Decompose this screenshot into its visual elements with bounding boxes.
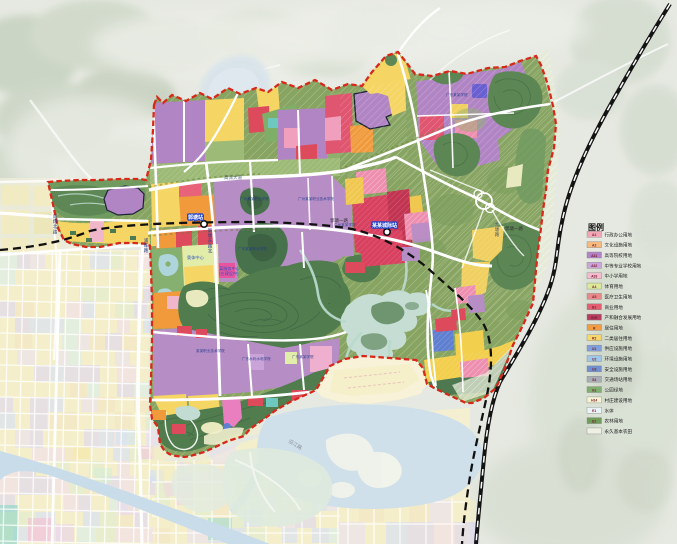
svg-text:行政办公用地: 行政办公用地: [605, 231, 633, 238]
svg-text:A31: A31: [591, 254, 597, 258]
svg-text:环境设施用地: 环境设施用地: [605, 356, 633, 363]
svg-text:凤翔北路: 凤翔北路: [53, 214, 58, 235]
svg-text:高派大道: 高派大道: [224, 174, 242, 181]
svg-text:二类居住用地: 二类居住用地: [605, 335, 633, 342]
svg-text:产和融合发展用地: 产和融合发展用地: [605, 314, 642, 321]
svg-text:广东水利水电学院: 广东水利水电学院: [242, 356, 271, 361]
svg-text:文化设施用地: 文化设施用地: [605, 242, 633, 249]
svg-text:郭塘一路: 郭塘一路: [505, 225, 523, 232]
svg-text:B1: B1: [592, 306, 596, 310]
svg-text:浦晖路: 浦晖路: [144, 237, 149, 254]
svg-text:R2: R2: [592, 337, 596, 341]
svg-text:新塘东路北: 新塘东路北: [208, 227, 213, 254]
svg-text:居住用地: 居住用地: [605, 324, 624, 331]
svg-text:村庄建设用地: 村庄建设用地: [605, 397, 633, 404]
svg-text:S4: S4: [592, 378, 596, 382]
svg-text:广州某某职业学院: 广州某某职业学院: [240, 196, 269, 201]
svg-text:A33: A33: [591, 275, 597, 279]
svg-text:广州某某职业技术学院: 广州某某职业技术学院: [298, 196, 334, 201]
svg-text:A5: A5: [592, 295, 596, 299]
svg-text:A4: A4: [592, 285, 596, 289]
svg-text:某某城际站: 某某城际站: [371, 222, 397, 229]
svg-text:高等院校用地: 高等院校用地: [605, 252, 633, 259]
svg-text:安全设施用地: 安全设施用地: [605, 366, 633, 373]
svg-text:广东某某学院: 广东某某学院: [446, 92, 468, 97]
svg-text:奥体中心: 奥体中心: [187, 254, 205, 261]
svg-text:图例: 图例: [588, 222, 604, 232]
svg-text:交通场站用地: 交通场站用地: [605, 376, 633, 383]
svg-text:郭塘站: 郭塘站: [188, 214, 203, 221]
svg-text:(在建设中): (在建设中): [219, 270, 239, 277]
svg-text:某某职业技术学院: 某某职业技术学院: [196, 348, 225, 353]
svg-text:U3: U3: [592, 368, 596, 372]
svg-text:水体: 水体: [605, 407, 615, 414]
svg-text:体育用地: 体育用地: [605, 283, 624, 290]
svg-text:H14: H14: [591, 399, 597, 403]
svg-text:U1: U1: [592, 347, 596, 351]
svg-text:E2: E2: [592, 419, 596, 423]
svg-text:中小学用地: 中小学用地: [605, 273, 628, 280]
svg-text:商业用地: 商业用地: [605, 304, 624, 311]
svg-text:E1: E1: [592, 409, 596, 413]
svg-text:医疗卫生用地: 医疗卫生用地: [605, 293, 633, 300]
svg-text:G1: G1: [592, 388, 597, 392]
svg-text:广东某某学院: 广东某某学院: [292, 354, 314, 359]
svg-text:中等专业学校用地: 中等专业学校用地: [605, 262, 642, 269]
svg-text:公园绿地: 公园绿地: [605, 387, 624, 394]
svg-text:U2: U2: [592, 357, 596, 361]
svg-text:A1: A1: [592, 233, 596, 237]
svg-text:A2: A2: [592, 243, 596, 247]
svg-text:供应设施用地: 供应设施用地: [605, 345, 633, 352]
svg-text:永久基本农田: 永久基本农田: [605, 428, 633, 435]
svg-text:B/R: B/R: [591, 316, 597, 320]
svg-text:A32: A32: [591, 264, 597, 268]
svg-text:大塘路: 大塘路: [495, 221, 500, 238]
svg-text:广东某某职业学院: 广东某某职业学院: [238, 246, 267, 251]
svg-text:郭塘一路: 郭塘一路: [330, 217, 348, 224]
svg-text:农林用地: 农林用地: [605, 418, 624, 425]
